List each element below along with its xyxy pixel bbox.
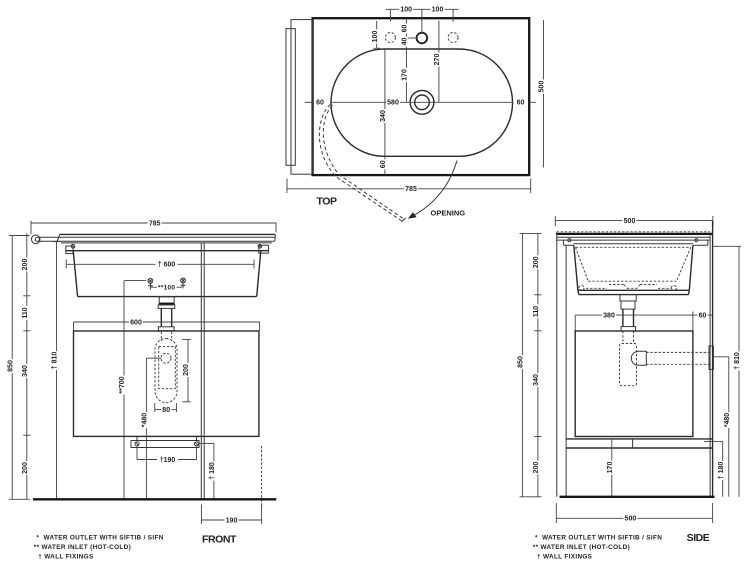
svg-text:SIDE: SIDE bbox=[687, 532, 710, 544]
svg-text:340: 340 bbox=[533, 374, 540, 386]
svg-text:80: 80 bbox=[162, 407, 170, 414]
svg-text:380: 380 bbox=[603, 313, 615, 320]
svg-text:**700: **700 bbox=[119, 376, 126, 393]
svg-text:190: 190 bbox=[226, 517, 238, 524]
svg-text:850: 850 bbox=[7, 360, 14, 372]
svg-text:270: 270 bbox=[434, 54, 441, 66]
svg-text:† WALL FIXINGS: † WALL FIXINGS bbox=[537, 553, 593, 560]
svg-text:200: 200 bbox=[533, 462, 540, 474]
svg-text:40: 40 bbox=[402, 38, 409, 46]
svg-text:785: 785 bbox=[149, 220, 161, 227]
svg-text:† 810: † 810 bbox=[734, 352, 741, 370]
svg-text:600: 600 bbox=[130, 319, 142, 326]
svg-text:200: 200 bbox=[22, 259, 29, 271]
svg-text:100: 100 bbox=[400, 7, 412, 14]
svg-text:** WATER INLET (HOT-COLD): ** WATER INLET (HOT-COLD) bbox=[34, 544, 131, 551]
svg-text:850: 850 bbox=[518, 356, 525, 368]
svg-text:† 600: † 600 bbox=[158, 262, 176, 269]
svg-text:785: 785 bbox=[405, 186, 417, 193]
svg-text:200: 200 bbox=[22, 462, 29, 474]
svg-text:60: 60 bbox=[699, 313, 707, 320]
svg-text:OPENING: OPENING bbox=[431, 208, 466, 217]
svg-text:*480: *480 bbox=[142, 413, 149, 428]
svg-text:500: 500 bbox=[624, 218, 636, 225]
svg-text:† 180: † 180 bbox=[209, 462, 216, 480]
svg-text:170: 170 bbox=[402, 69, 409, 81]
svg-text:580: 580 bbox=[387, 100, 399, 107]
svg-text:340: 340 bbox=[380, 110, 387, 122]
svg-text:* WATER OUTLET WITH SIFTIB /: * WATER OUTLET WITH SIFTIB / SIFN bbox=[37, 534, 164, 541]
svg-text:*480: *480 bbox=[724, 413, 731, 428]
svg-text:**100: **100 bbox=[158, 285, 175, 292]
svg-text:100: 100 bbox=[432, 7, 444, 14]
svg-text:** WATER INLET (HOT-COLD): ** WATER INLET (HOT-COLD) bbox=[533, 544, 630, 551]
svg-text:†190: †190 bbox=[160, 457, 176, 464]
svg-text:FRONT: FRONT bbox=[202, 534, 237, 546]
svg-text:60: 60 bbox=[517, 100, 525, 107]
svg-text:60: 60 bbox=[380, 160, 387, 168]
svg-text:200: 200 bbox=[183, 364, 190, 376]
svg-text:110: 110 bbox=[533, 306, 540, 317]
svg-text:340: 340 bbox=[22, 365, 29, 377]
svg-text:500: 500 bbox=[539, 81, 546, 93]
svg-text:110: 110 bbox=[22, 307, 29, 318]
svg-text:200: 200 bbox=[533, 256, 540, 268]
svg-text:60: 60 bbox=[402, 25, 409, 33]
svg-text:TOP: TOP bbox=[316, 195, 336, 207]
svg-text:† 180: † 180 bbox=[718, 462, 725, 480]
svg-text:† WALL FIXINGS: † WALL FIXINGS bbox=[38, 554, 94, 561]
svg-text:* WATER OUTLET WITH SIFTIB /: * WATER OUTLET WITH SIFTIB / SIFN bbox=[535, 535, 662, 542]
svg-text:100: 100 bbox=[372, 31, 379, 43]
svg-text:† 810: † 810 bbox=[52, 352, 59, 370]
svg-text:60: 60 bbox=[316, 100, 324, 107]
svg-text:500: 500 bbox=[625, 516, 637, 523]
svg-text:170: 170 bbox=[607, 462, 614, 474]
